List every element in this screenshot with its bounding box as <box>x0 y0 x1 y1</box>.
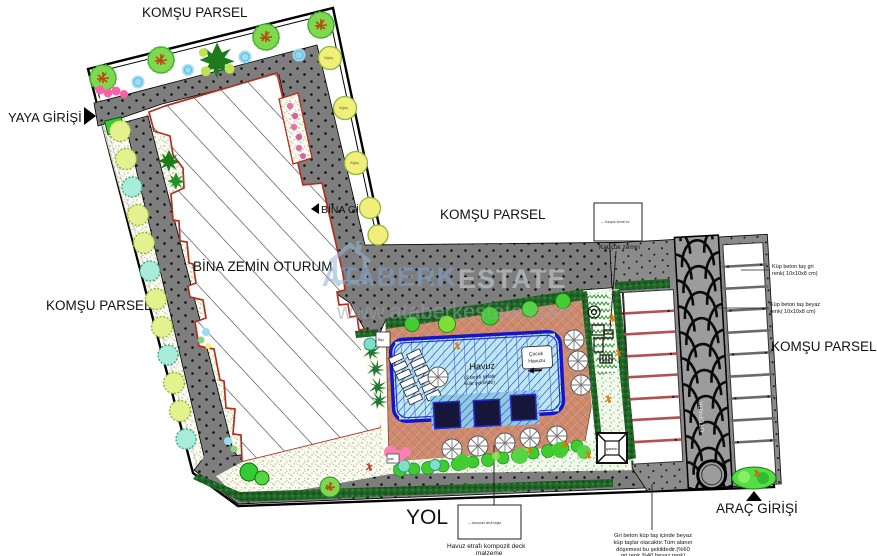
svg-text:malzeme: malzeme <box>476 550 503 556</box>
svg-text:Çocuk: Çocuk <box>529 351 544 358</box>
svg-text:Havuz etrafı kompozit deck: Havuz etrafı kompozit deck <box>447 543 526 550</box>
svg-text:Ağaç: Ağaç <box>350 160 359 165</box>
svg-text:ATABERK: ATABERK <box>322 262 457 292</box>
svg-text:Ağaç: Ağaç <box>339 105 348 110</box>
svg-text:YAYA GİRİŞİ: YAYA GİRİŞİ <box>8 110 82 125</box>
svg-text:pan: pan <box>388 457 394 461</box>
svg-text:Bşı: Bşı <box>378 337 384 342</box>
svg-text:www.ataberkestate.com: www.ataberkestate.com <box>336 299 571 324</box>
svg-text:renk( 10x10x8 cm): renk( 10x10x8 cm) <box>770 309 816 315</box>
svg-text:küp taşlar olacaktır.Tüm alanı: küp taşlar olacaktır.Tüm alanın <box>614 540 693 546</box>
svg-text:KOMŞU PARSEL: KOMŞU PARSEL <box>771 339 877 354</box>
svg-text:Kauçuk zemin: Kauçuk zemin <box>599 244 640 251</box>
svg-text:BİNA ZEMİN OTURUM: BİNA ZEMİN OTURUM <box>193 259 333 274</box>
svg-text:Gri beton küp taş içinde beyaz: Gri beton küp taş içinde beyaz <box>614 533 692 539</box>
svg-text:renk( 10x10x8 cm): renk( 10x10x8 cm) <box>772 271 818 277</box>
svg-text:KOMŞU PARSEL: KOMŞU PARSEL <box>440 207 546 222</box>
svg-text:— Kauçuk zemin ko: — Kauçuk zemin ko <box>601 220 630 224</box>
svg-text:KOMŞU PARSEL: KOMŞU PARSEL <box>142 5 248 20</box>
svg-text:Küp beton taş beyaz: Küp beton taş beyaz <box>770 302 820 308</box>
svg-text:ESTATE: ESTATE <box>458 264 567 294</box>
svg-text:— kompozit deck kapla: — kompozit deck kapla <box>468 521 501 525</box>
svg-text:Havuz: Havuz <box>469 361 495 372</box>
svg-text:Havuzu: Havuzu <box>528 358 545 365</box>
svg-text:gazebo: gazebo <box>606 447 618 451</box>
svg-text:ARAÇ GİRİŞİ: ARAÇ GİRİŞİ <box>716 501 798 516</box>
svg-text:YOL: YOL <box>406 506 448 529</box>
svg-text:Ağaç: Ağaç <box>324 55 333 60</box>
svg-text:KOMŞU PARSEL: KOMŞU PARSEL <box>46 298 152 313</box>
svg-text:Küp beton taş gri: Küp beton taş gri <box>772 264 814 270</box>
